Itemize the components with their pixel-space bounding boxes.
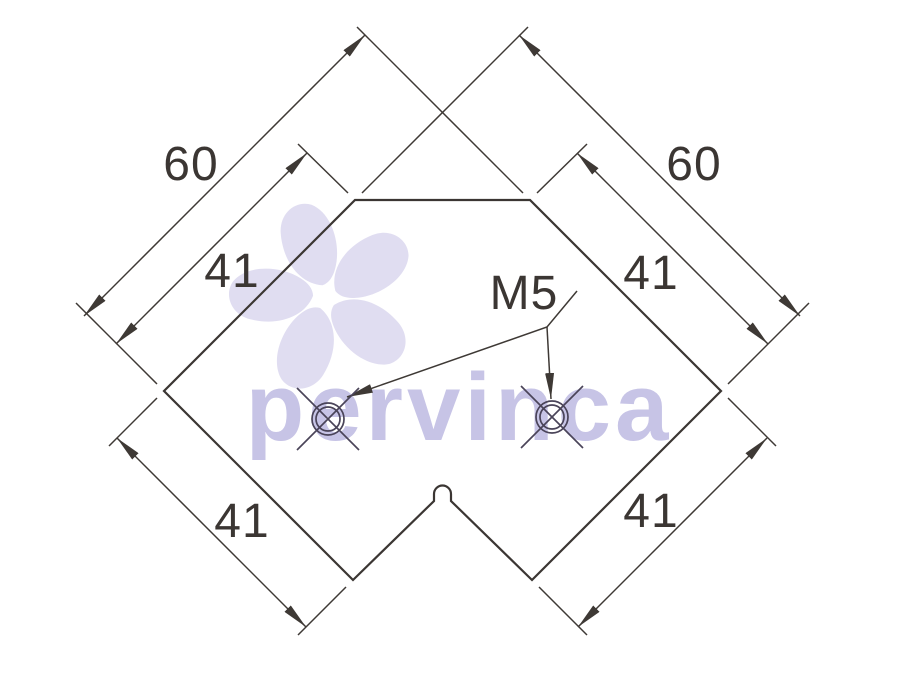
extension-line-flat-top-right <box>537 144 587 193</box>
watermark-text: pervinca <box>246 354 673 461</box>
dimension-lines <box>84 35 800 627</box>
extension-line-left-vertex-down <box>109 398 157 446</box>
dim-label-60-left: 60 <box>163 138 218 191</box>
extension-line-top-left-cross <box>357 27 523 193</box>
dimension-line-41-lower-left <box>117 438 306 627</box>
extension-lines <box>76 27 809 635</box>
extension-line-flat-top-left <box>298 144 348 193</box>
dim-label-41-lower-right: 41 <box>623 485 678 538</box>
m5-callout-label: M5 <box>490 267 559 320</box>
watermark: pervinca <box>207 183 673 461</box>
drawing-canvas: pervinca <box>0 0 898 675</box>
dim-label-41-upper-left: 41 <box>204 245 259 298</box>
extension-line-top-right-cross <box>362 27 528 193</box>
extension-line-right-vertex-down <box>728 398 776 446</box>
extension-line-bottom-left-vertex <box>298 587 346 635</box>
dim-label-41-lower-left: 41 <box>214 495 269 548</box>
dim-label-60-right: 60 <box>666 138 721 191</box>
extension-line-bottom-right-vertex <box>539 587 587 635</box>
dim-label-41-upper-right: 41 <box>623 247 678 300</box>
